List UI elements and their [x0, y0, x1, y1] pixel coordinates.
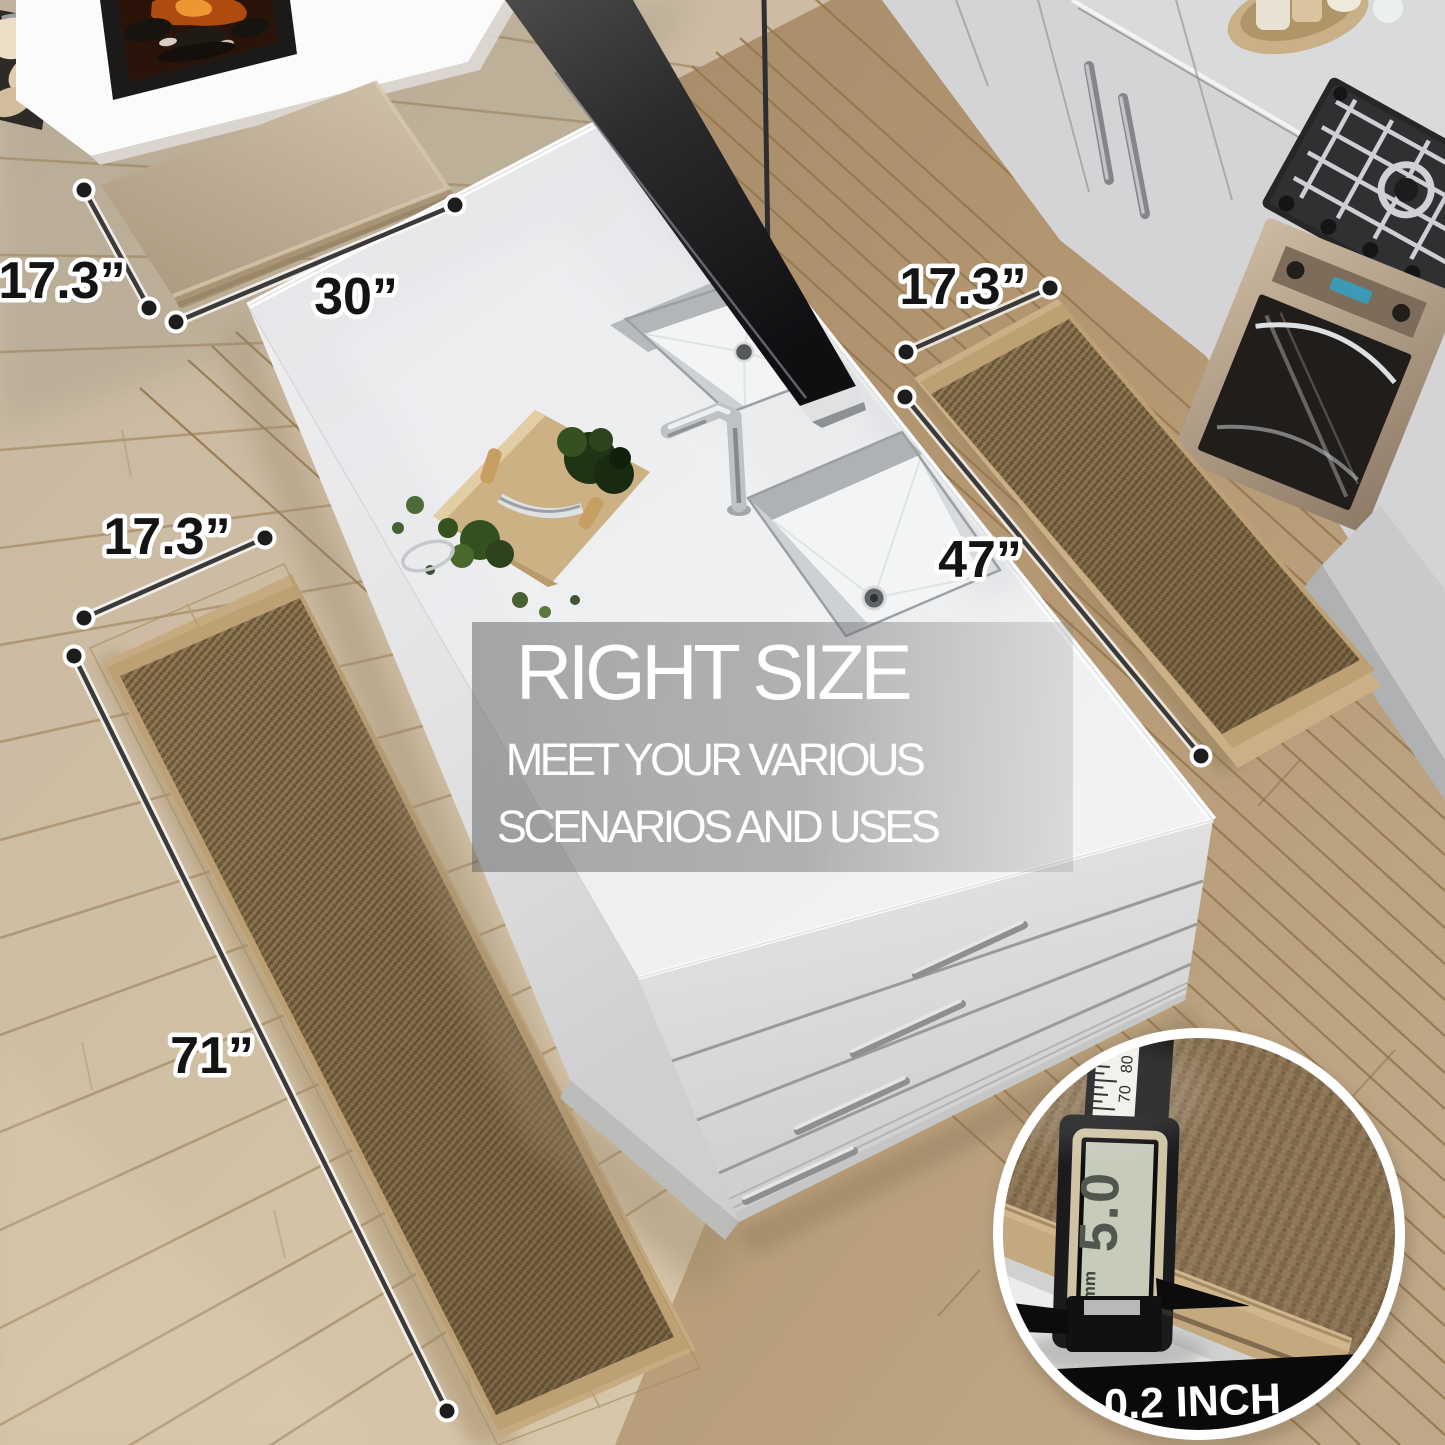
svg-text:17.3”: 17.3”	[0, 252, 126, 310]
svg-text:SCENARIOS AND USES: SCENARIOS AND USES	[497, 801, 939, 852]
svg-text:17.3”: 17.3”	[899, 258, 1026, 316]
svg-text:MEET YOUR VARIOUS: MEET YOUR VARIOUS	[506, 734, 924, 785]
svg-text:5.0: 5.0	[1068, 1170, 1131, 1253]
svg-text:47”: 47”	[938, 531, 1022, 589]
svg-text:30”: 30”	[314, 268, 398, 326]
svg-text:RIGHT SIZE: RIGHT SIZE	[516, 628, 910, 716]
svg-text:17.3”: 17.3”	[103, 508, 230, 566]
svg-text:71”: 71”	[170, 1027, 254, 1085]
